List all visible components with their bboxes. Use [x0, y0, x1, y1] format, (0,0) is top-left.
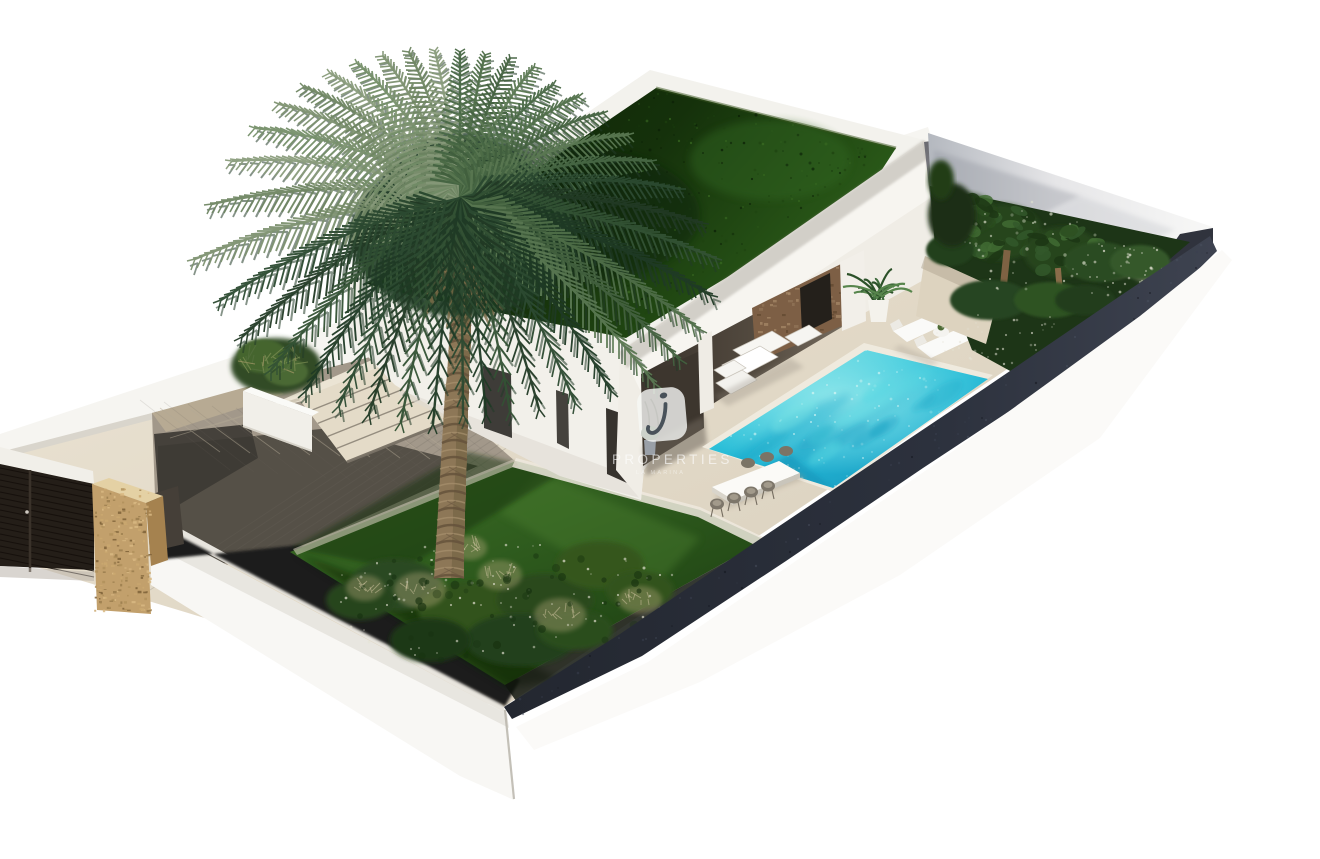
- svg-text:LA MARINA: LA MARINA: [636, 470, 685, 476]
- svg-text:PROPERTIES: PROPERTIES: [612, 452, 733, 467]
